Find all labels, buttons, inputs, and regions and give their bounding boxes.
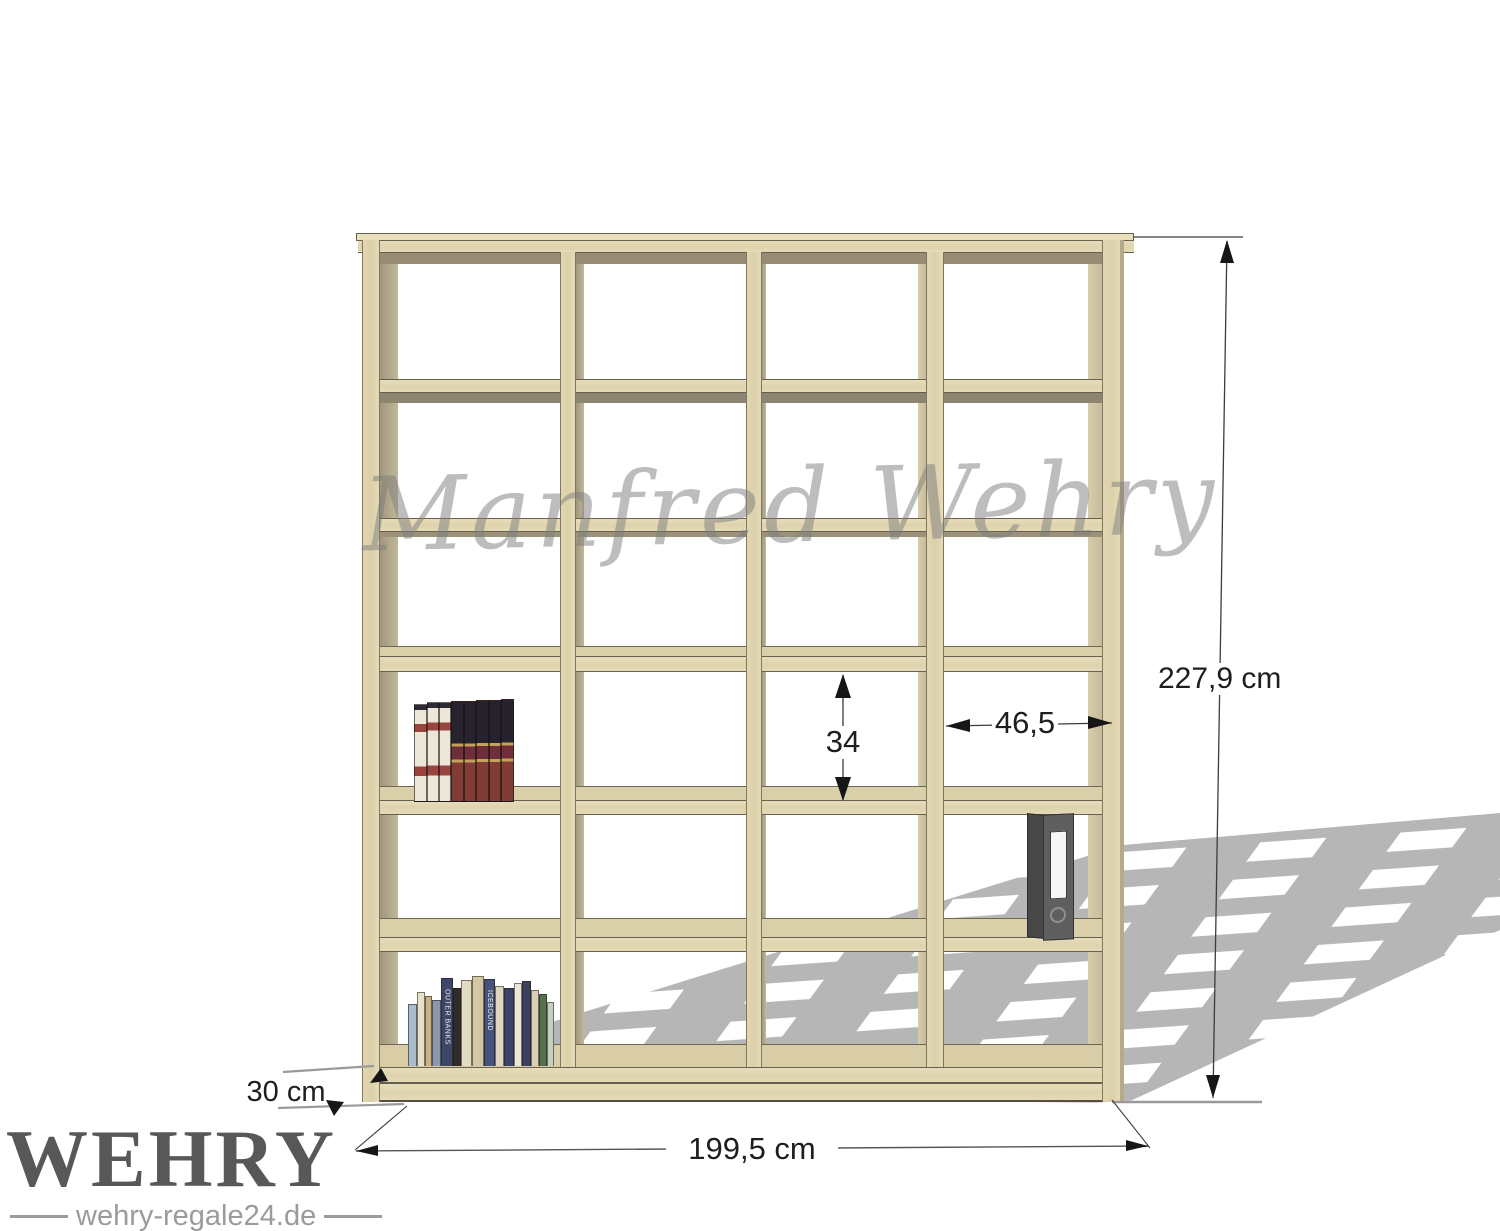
tagline-left-dash: [10, 1215, 68, 1218]
dimension-lines: [0, 0, 1500, 1231]
product-diagram: OUTER BANKS ICEBOUND: [0, 0, 1500, 1231]
watermark-text: Manfred Wehry: [361, 440, 1173, 576]
brand-logo: WEHRY: [6, 1118, 337, 1200]
depth-dimension-label: 30 cm: [242, 1077, 330, 1107]
tagline-right-dash: [324, 1215, 382, 1218]
width-dimension-label: 199,5 cm: [666, 1133, 838, 1166]
height-dimension-label: 227,9 cm: [1158, 663, 1278, 695]
cell-height-dimension-label: 34: [820, 726, 866, 759]
brand-tagline: wehry-regale24.de: [10, 1200, 382, 1231]
brand-website: wehry-regale24.de: [76, 1200, 316, 1231]
cell-width-dimension-label: 46,5: [992, 707, 1058, 740]
